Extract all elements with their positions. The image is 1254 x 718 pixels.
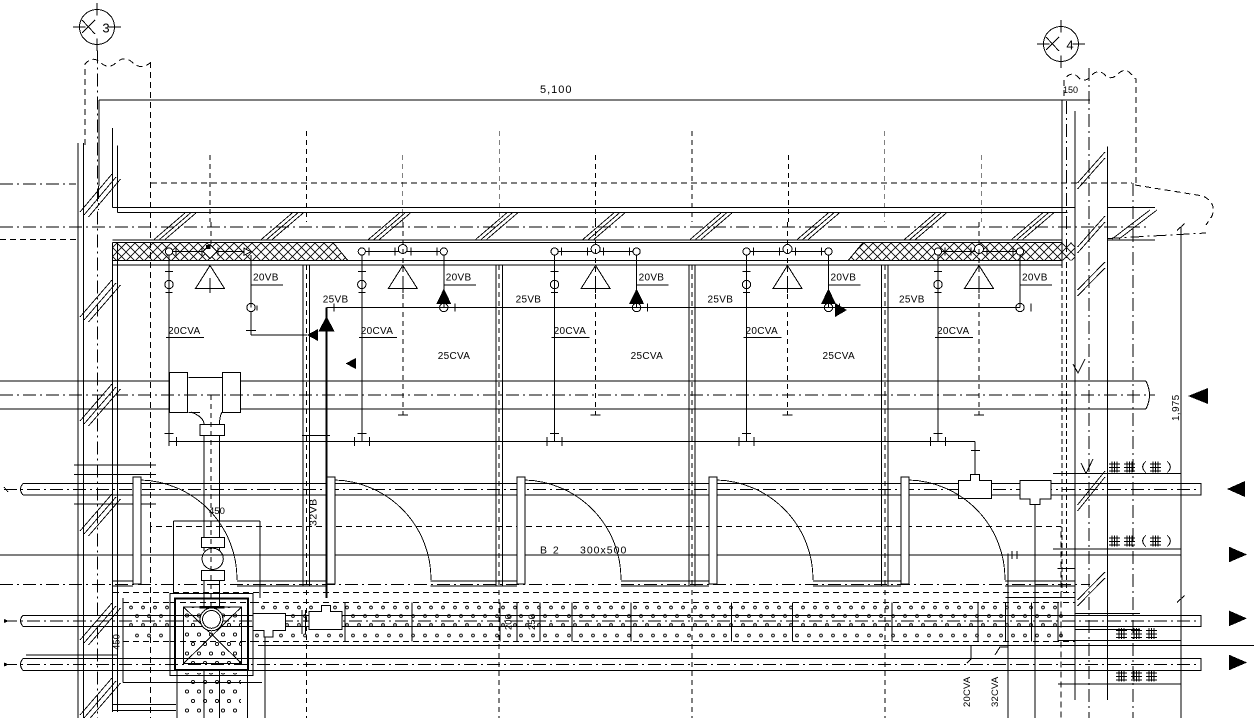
- svg-text:25VB: 25VB: [708, 295, 734, 306]
- svg-text:20VB: 20VB: [253, 273, 279, 284]
- svg-text:20CVA: 20CVA: [746, 326, 778, 337]
- svg-text:20VB: 20VB: [831, 273, 857, 284]
- svg-text:4: 4: [1066, 38, 1073, 53]
- svg-text:20VB: 20VB: [446, 273, 472, 284]
- svg-text:20CVA: 20CVA: [168, 326, 200, 337]
- svg-text:20VB: 20VB: [1022, 273, 1048, 284]
- svg-text:450: 450: [209, 506, 225, 517]
- svg-text:25VB: 25VB: [899, 295, 925, 306]
- svg-text:3: 3: [102, 21, 109, 36]
- svg-text:32CVA: 32CVA: [990, 676, 1001, 707]
- svg-text:25CVA: 25CVA: [823, 351, 855, 362]
- svg-text:20VB: 20VB: [639, 273, 665, 284]
- svg-text:20CVA: 20CVA: [361, 326, 393, 337]
- svg-text:25VB: 25VB: [323, 295, 349, 306]
- svg-text:150: 150: [1063, 85, 1078, 95]
- svg-text:20CVA: 20CVA: [554, 326, 586, 337]
- svg-text:200: 200: [504, 614, 515, 630]
- svg-text:450: 450: [112, 634, 123, 650]
- svg-text:300x500: 300x500: [580, 545, 627, 557]
- svg-text:25CVA: 25CVA: [438, 351, 470, 362]
- svg-text:250: 250: [527, 614, 538, 630]
- svg-text:32VB: 32VB: [308, 498, 320, 526]
- svg-text:20CVA: 20CVA: [937, 326, 969, 337]
- svg-text:1,975: 1,975: [1171, 394, 1182, 421]
- svg-text:20CVA: 20CVA: [962, 676, 973, 707]
- svg-text:5,100: 5,100: [540, 84, 573, 96]
- svg-text:25VB: 25VB: [516, 295, 542, 306]
- svg-text:25CVA: 25CVA: [631, 351, 663, 362]
- svg-text:B 2: B 2: [540, 545, 560, 557]
